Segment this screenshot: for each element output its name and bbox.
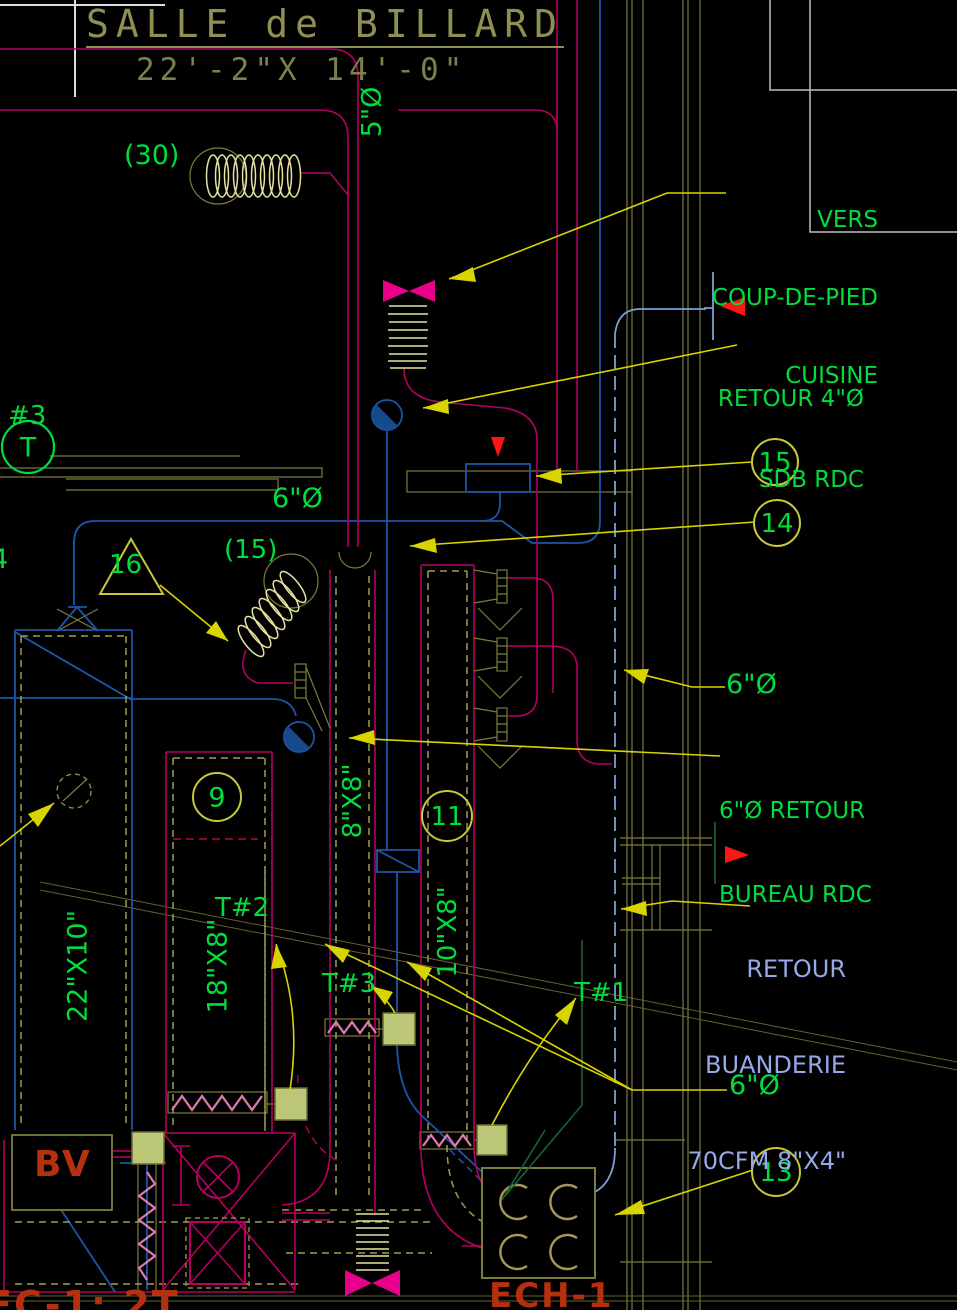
flow-flag-icon xyxy=(720,297,745,316)
structure-lines xyxy=(0,0,957,1310)
grid-line xyxy=(0,1296,957,1301)
callout-triangle-16 xyxy=(100,539,163,594)
damper-actuator-square xyxy=(132,1132,164,1164)
ech-1-exchanger-box xyxy=(482,1168,595,1278)
equipment xyxy=(12,1013,595,1278)
flow-arrow-icon xyxy=(491,437,505,457)
leader-lines xyxy=(0,193,755,1215)
thermostat-square-t3 xyxy=(383,1013,415,1045)
leader-arrowhead xyxy=(449,267,476,282)
thermostat-square-t1 xyxy=(477,1125,507,1155)
callout-circle-14 xyxy=(754,500,800,546)
flow-flags xyxy=(491,297,749,863)
hvac-plan-sheet: SALLE de BILLARD 22'-2"X 14'-0" 5"Ø (30)… xyxy=(0,0,957,1310)
thermostat-circle-t3-tag xyxy=(2,421,54,473)
thermostat-square-t2 xyxy=(275,1088,307,1120)
wall-lines xyxy=(0,0,957,232)
return-grille-box xyxy=(466,464,530,492)
callout-circle-9 xyxy=(193,773,241,821)
callout-circle-11 xyxy=(422,791,472,841)
linear-grille xyxy=(407,471,632,492)
flow-flag-icon xyxy=(725,846,749,863)
callout-circle-15 xyxy=(752,439,798,485)
bv-unit-box xyxy=(12,1135,112,1210)
grille-symbols xyxy=(295,570,522,768)
damper-bowtie-icon xyxy=(345,1270,372,1296)
return-riser-lightblue xyxy=(562,272,713,1200)
plan-linework xyxy=(0,0,957,1310)
damper-bowtie-icon xyxy=(383,280,409,302)
callout-circle-13 xyxy=(752,1148,800,1196)
duct-transition xyxy=(377,850,419,872)
